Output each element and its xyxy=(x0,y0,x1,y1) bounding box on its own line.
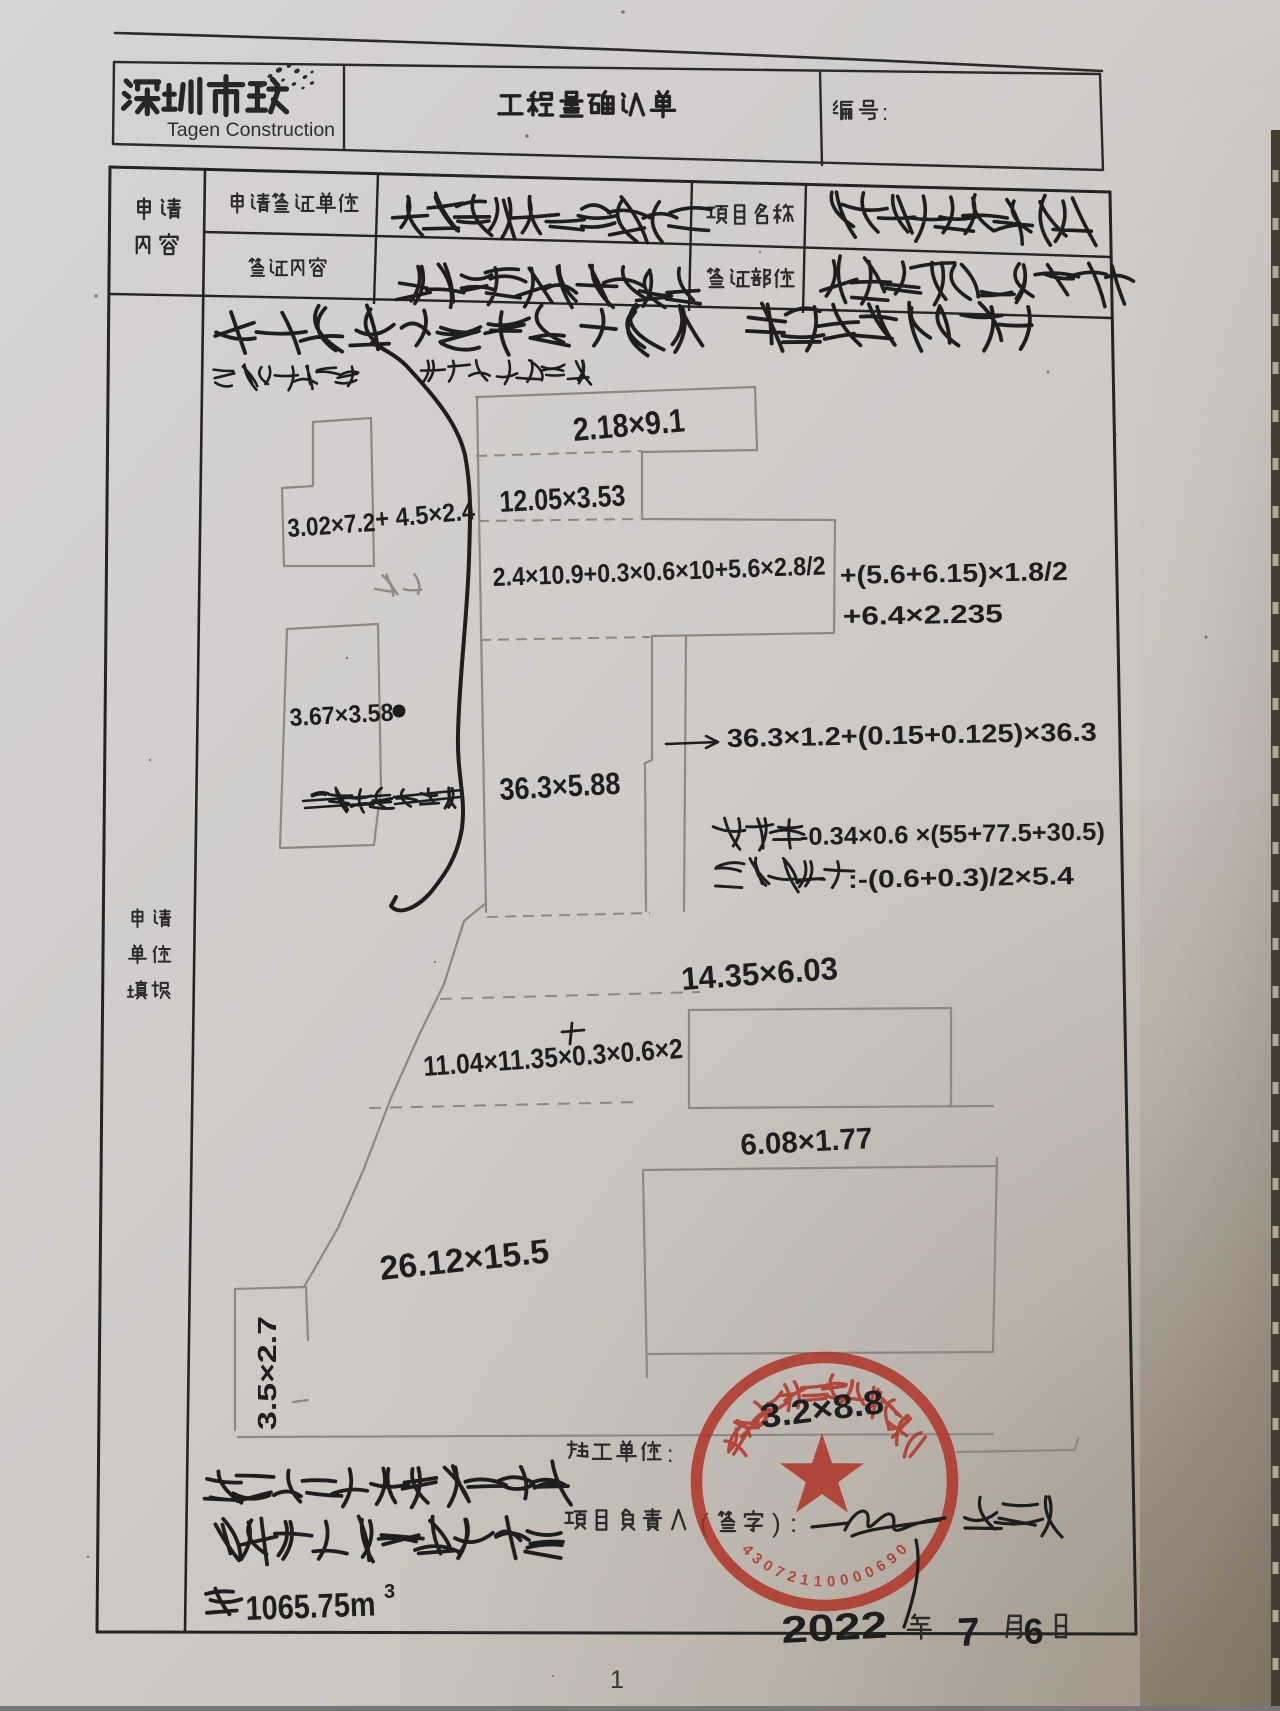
svg-text:12.05×3.53: 12.05×3.53 xyxy=(499,479,627,519)
svg-text:-0.34×0.6 ×(55+77.5+30.5): -0.34×0.6 ×(55+77.5+30.5) xyxy=(800,818,1105,851)
svg-text:36.3×5.88: 36.3×5.88 xyxy=(499,766,622,807)
svg-text:3.67×3.58: 3.67×3.58 xyxy=(289,699,394,732)
svg-text:0: 0 xyxy=(826,1573,835,1590)
svg-text:7: 7 xyxy=(957,1610,981,1655)
svg-text:+(5.6+6.15)×1.8/2: +(5.6+6.15)×1.8/2 xyxy=(840,556,1068,590)
svg-text:3.02×7.2: 3.02×7.2 xyxy=(286,507,376,543)
svg-text:6.08×1.77: 6.08×1.77 xyxy=(740,1122,874,1162)
svg-text:1: 1 xyxy=(813,1573,822,1590)
svg-text:1: 1 xyxy=(610,1666,624,1694)
svg-text:6: 6 xyxy=(1023,1610,1044,1652)
svg-text:2022: 2022 xyxy=(780,1604,888,1651)
svg-text::-(0.6+0.3)/2×5.4: :-(0.6+0.3)/2×5.4 xyxy=(848,862,1075,894)
svg-text:3: 3 xyxy=(384,1581,395,1603)
svg-text::: : xyxy=(667,1441,673,1467)
svg-text:3.5×2.7: 3.5×2.7 xyxy=(252,1316,282,1430)
svg-text::: : xyxy=(882,100,888,125)
svg-text:): ) xyxy=(772,1508,781,1538)
svg-text:Tagen Construction: Tagen Construction xyxy=(167,119,335,141)
svg-text:+6.4×2.235: +6.4×2.235 xyxy=(843,598,1003,631)
svg-text:1065.75m: 1065.75m xyxy=(245,1585,376,1628)
